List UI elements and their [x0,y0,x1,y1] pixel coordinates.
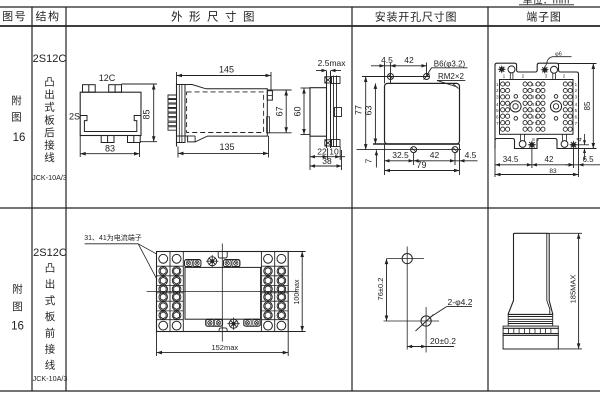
svg-text:2.5max: 2.5max [318,58,347,68]
svg-text:145: 145 [219,65,234,75]
svg-text:附: 附 [11,94,22,107]
svg-text:42: 42 [404,55,414,65]
svg-text:5: 5 [575,108,578,113]
svg-text:152max: 152max [211,343,238,352]
svg-text:式: 式 [44,101,55,114]
svg-text:图: 图 [12,301,23,313]
svg-text:后: 后 [44,127,55,139]
svg-text:附: 附 [12,283,23,296]
svg-text:图: 图 [11,112,22,124]
svg-text:3: 3 [575,95,578,100]
svg-text:4.5: 4.5 [465,150,477,160]
svg-text:接: 接 [45,343,56,356]
svg-text:B6(φ3.2): B6(φ3.2) [434,60,466,69]
svg-text:83: 83 [105,143,115,153]
svg-text:8: 8 [532,137,535,142]
svg-text:出: 出 [45,278,56,291]
svg-text:63: 63 [363,105,373,115]
svg-text:100max: 100max [294,279,301,304]
svg-text:60: 60 [292,106,302,116]
svg-text:2: 2 [496,88,499,93]
svg-text:6: 6 [535,115,538,121]
svg-text:67: 67 [275,106,285,116]
svg-text:135: 135 [219,142,234,152]
svg-text:20±0.2: 20±0.2 [430,336,456,346]
svg-text:4: 4 [576,137,583,141]
svg-text:7: 7 [496,121,499,126]
svg-text:凸: 凸 [45,263,56,275]
svg-text:16: 16 [13,132,26,144]
svg-text:3: 3 [496,95,499,100]
svg-text:42: 42 [430,150,440,160]
svg-text:5: 5 [535,108,538,114]
svg-text:接: 接 [44,139,55,152]
svg-text:JCK-10A/3: JCK-10A/3 [32,173,67,182]
svg-text:6: 6 [575,115,578,120]
svg-text:32.5: 32.5 [392,150,409,160]
svg-text:4: 4 [496,102,499,107]
svg-text:1: 1 [535,82,538,88]
svg-text:2: 2 [563,74,566,79]
svg-text:板: 板 [44,113,55,126]
svg-text:76±0.2: 76±0.2 [376,278,385,301]
svg-text:1: 1 [496,82,499,87]
svg-text:4: 4 [575,102,578,107]
svg-text:外形尺寸图: 外形尺寸图 [171,10,261,24]
svg-text:单位：mm: 单位：mm [523,0,570,7]
svg-text:2-φ4.2: 2-φ4.2 [448,297,473,307]
svg-text:2S: 2S [69,112,80,122]
svg-text:38: 38 [322,156,332,166]
svg-text:42: 42 [545,155,554,164]
svg-text:式: 式 [45,294,56,307]
svg-text:2: 2 [535,88,538,94]
svg-text:2: 2 [575,88,578,93]
svg-text:JCK-10A/3: JCK-10A/3 [33,374,68,383]
svg-text:83: 83 [549,168,557,175]
svg-text:安装开孔尺寸图: 安装开孔尺寸图 [375,10,458,24]
svg-text:端子图: 端子图 [526,11,561,24]
svg-text:4: 4 [535,102,538,108]
svg-text:6: 6 [496,115,499,120]
svg-text:7: 7 [535,121,538,127]
svg-text:1: 1 [575,82,578,87]
svg-text:线: 线 [44,151,55,164]
svg-text:4.5: 4.5 [381,55,393,65]
svg-text:出: 出 [44,88,55,101]
svg-text:34.5: 34.5 [503,155,519,164]
svg-text:结构: 结构 [36,9,61,23]
svg-text:85: 85 [142,109,152,119]
svg-text:凸: 凸 [44,77,55,89]
svg-text:2: 2 [522,74,525,79]
svg-text:1: 1 [503,74,506,79]
svg-text:5: 5 [496,108,499,113]
svg-text:7: 7 [364,158,374,163]
svg-text:12C: 12C [99,73,116,83]
svg-text:图号: 图号 [2,10,27,23]
svg-text:31、41为电流端子: 31、41为电流端子 [84,233,142,242]
svg-text:线: 线 [45,359,56,372]
svg-text:3: 3 [545,74,548,79]
svg-text:7: 7 [575,121,578,126]
svg-text:185MAX: 185MAX [568,275,577,304]
svg-text:前: 前 [45,326,56,339]
svg-text:板: 板 [45,310,56,323]
svg-text:16: 16 [11,321,24,333]
svg-text:3: 3 [535,95,538,101]
svg-text:79: 79 [416,160,426,170]
svg-text:8: 8 [536,137,539,142]
svg-text:RM2×2: RM2×2 [438,72,465,81]
svg-text:2S12C: 2S12C [33,53,67,65]
svg-text:77: 77 [354,105,364,115]
svg-text:85: 85 [583,101,592,110]
svg-text:2S12C: 2S12C [33,247,67,259]
